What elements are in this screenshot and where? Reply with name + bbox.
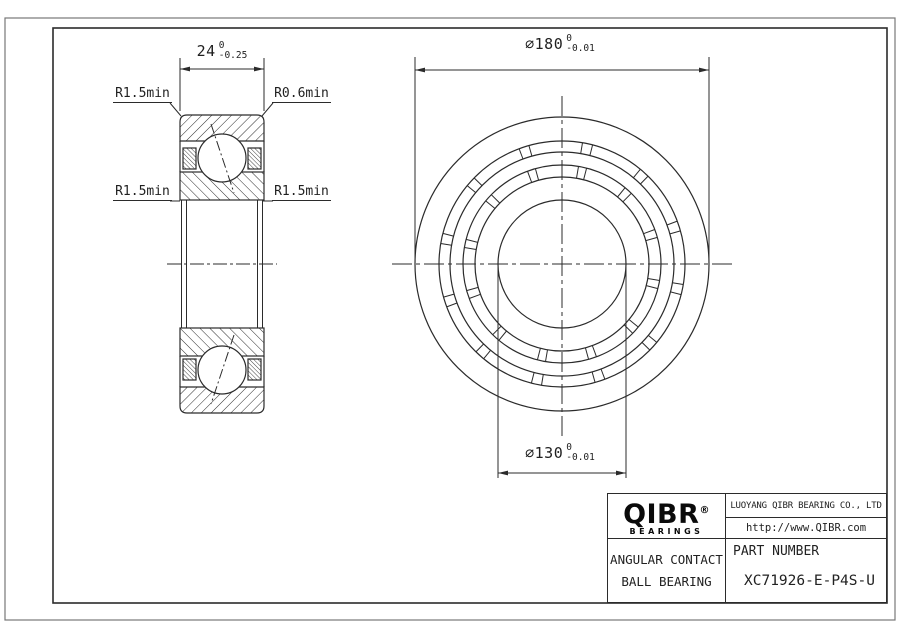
part-number-value: XC71926-E-P4S-U [733, 573, 886, 589]
section-view [167, 115, 277, 413]
width-tolerance: 0 -0.25 [219, 41, 248, 61]
width-value: 24 [197, 42, 216, 60]
company-info: LUOYANG QIBR BEARING CO., LTD http://www… [726, 494, 886, 538]
engineering-drawing: 24 0 -0.25 R1.5min R0.6min R1.5min R1.5m… [0, 0, 900, 636]
part-number-label: PART NUMBER [733, 544, 886, 559]
ball-top [198, 134, 246, 182]
company-website: http://www.QIBR.com [726, 518, 886, 538]
cage-right-bottom [248, 359, 261, 380]
part-number-cell: PART NUMBER XC71926-E-P4S-U [726, 539, 886, 602]
title-block: QIBR® BEARINGS LUOYANG QIBR BEARING CO.,… [607, 493, 887, 603]
od-value: 180 [535, 35, 564, 53]
logo-subtext: BEARINGS [630, 527, 704, 536]
bore-dimension-text: ⌀ 130 0 -0.01 [495, 444, 625, 463]
radius-label-mid-right: R1.5min [272, 184, 331, 201]
od-tolerance: 0 -0.01 [566, 34, 595, 54]
front-view [392, 96, 733, 438]
diameter-symbol: ⌀ [525, 35, 535, 53]
width-dimension-text: 24 0 -0.25 [180, 42, 264, 61]
logo-text: QIBR® [623, 499, 710, 527]
od-dimension-text: ⌀ 180 0 -0.01 [495, 35, 625, 54]
company-logo: QIBR® BEARINGS [608, 494, 726, 538]
cage-left-bottom [183, 359, 196, 380]
bore-tolerance: 0 -0.01 [566, 443, 595, 463]
dimension-width [180, 58, 264, 111]
radius-label-top-right: R0.6min [272, 86, 331, 103]
registered-mark: ® [699, 505, 710, 516]
title-block-header-row: QIBR® BEARINGS LUOYANG QIBR BEARING CO.,… [608, 494, 886, 539]
product-line2: BALL BEARING [621, 571, 711, 593]
section-bottom-half [180, 328, 264, 413]
section-top-half [180, 115, 264, 200]
cage-left-top [183, 148, 196, 169]
cage-right-top [248, 148, 261, 169]
radius-label-mid-left: R1.5min [113, 184, 172, 201]
bore-value: 130 [535, 444, 564, 462]
product-type: ANGULAR CONTACT BALL BEARING [608, 539, 726, 602]
company-name: LUOYANG QIBR BEARING CO., LTD [726, 494, 886, 518]
diameter-symbol: ⌀ [525, 444, 535, 462]
title-block-part-row: ANGULAR CONTACT BALL BEARING PART NUMBER… [608, 539, 886, 602]
radius-label-top-left: R1.5min [113, 86, 172, 103]
product-line1: ANGULAR CONTACT [610, 549, 723, 571]
